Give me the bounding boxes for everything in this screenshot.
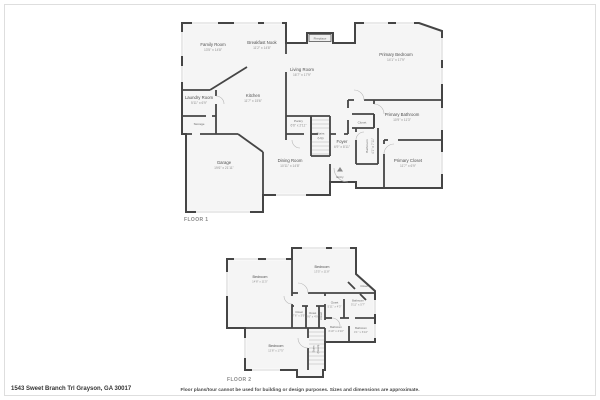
room-bathroom-dims: 4'1" x 7'11" bbox=[371, 137, 375, 154]
room-bedroom-a-dims: 14'8" x 11'5" bbox=[252, 280, 268, 284]
room-closet-mid-dims: 5'11" x 4'3" bbox=[327, 305, 341, 309]
room-kitchen-label: Kitchen bbox=[246, 93, 261, 98]
room-dining-label: Dining Room bbox=[278, 158, 303, 163]
room-bedroom-c-dims: 12'8" x 17'5" bbox=[268, 349, 284, 353]
entry-label: Entry bbox=[336, 175, 344, 179]
room-storage-label: Storage bbox=[194, 122, 205, 126]
room-primary-closet-label: Primary Closet bbox=[394, 158, 423, 163]
room-closet-c-label: Closet bbox=[319, 312, 323, 320]
room-pantry-label: Pantry bbox=[294, 119, 303, 123]
room-bedroom-c-label: Bedroom bbox=[269, 344, 284, 348]
room-bath-a-dims: 5'11" x 5'7" bbox=[351, 303, 365, 307]
room-living-dims: 16'7" x 17'9" bbox=[293, 73, 312, 77]
room-closet-a-dims: 7'6" x 3'9" bbox=[293, 314, 306, 318]
room-foyer-label: Foyer bbox=[337, 139, 349, 144]
floor1-plan: Fireplace Family Room 13'5" x 14'8" Brea… bbox=[178, 12, 448, 218]
room-dining-dims: 10'11" x 14'8" bbox=[280, 164, 300, 168]
room-bath-c-dims: 4'1" x 6'10" bbox=[354, 330, 368, 334]
room-garage-dims: 19'6" x 21'11" bbox=[214, 166, 234, 170]
room-closet-label: Closet bbox=[358, 121, 367, 125]
stairs-down-direction: (Down) bbox=[316, 345, 320, 354]
room-family-label: Family Room bbox=[200, 42, 226, 47]
room-primary-bathroom-label: Primary Bathroom bbox=[385, 112, 420, 117]
stairs-up-label: Stairs bbox=[317, 132, 325, 136]
room-primary-closet-dims: 11'7" x 6'9" bbox=[400, 164, 417, 168]
disclaimer-text: Floor plans/tour cannot be used for buil… bbox=[0, 388, 600, 393]
room-laundry-dims: 5'11" x 6'9" bbox=[191, 101, 208, 105]
floor2-caption: FLOOR 2 bbox=[227, 377, 251, 383]
room-family-dims: 13'5" x 14'8" bbox=[204, 48, 223, 52]
room-bedroom-b-label: Bedroom bbox=[315, 265, 330, 269]
room-kitchen-dims: 11'7" x 15'6" bbox=[244, 99, 263, 103]
room-laundry-label: Laundry Room bbox=[185, 95, 214, 100]
room-foyer-dims: 6'9" x 8'11" bbox=[334, 145, 351, 149]
floor1-caption: FLOOR 1 bbox=[184, 217, 208, 223]
room-living-label: Living Room bbox=[290, 67, 314, 72]
fireplace-label: Fireplace bbox=[314, 36, 327, 40]
room-breakfast-dims: 11'2" x 14'8" bbox=[253, 46, 272, 50]
room-bedroom-a-label: Bedroom bbox=[253, 275, 268, 279]
room-pantry-dims: 6'6" x 2'11" bbox=[290, 124, 307, 128]
floor2-plan: Bedroom 14'8" x 11'5" Bedroom 13'5" x 11… bbox=[222, 246, 382, 380]
room-closet-corner-label: Closet bbox=[360, 284, 368, 288]
room-breakfast-label: Breakfast Nook bbox=[247, 40, 277, 45]
stairs-up-direction: (Up) bbox=[317, 136, 323, 140]
room-bath-b-dims: 4'10" x 4'10" bbox=[328, 329, 344, 333]
room-bathroom-label: Bathroom bbox=[365, 139, 369, 153]
stairs-down-label: Stairs bbox=[312, 345, 316, 353]
room-primary-bedroom-dims: 14'1" x 17'9" bbox=[387, 58, 406, 62]
room-garage-label: Garage bbox=[217, 160, 232, 165]
room-primary-bedroom-label: Primary Bedroom bbox=[379, 52, 413, 57]
room-primary-bathroom-dims: 10'9" x 11'3" bbox=[393, 118, 412, 122]
room-closet-b-dims: 3'6" x 4'9" bbox=[306, 315, 319, 319]
room-bedroom-b-dims: 13'5" x 11'8" bbox=[314, 270, 330, 274]
